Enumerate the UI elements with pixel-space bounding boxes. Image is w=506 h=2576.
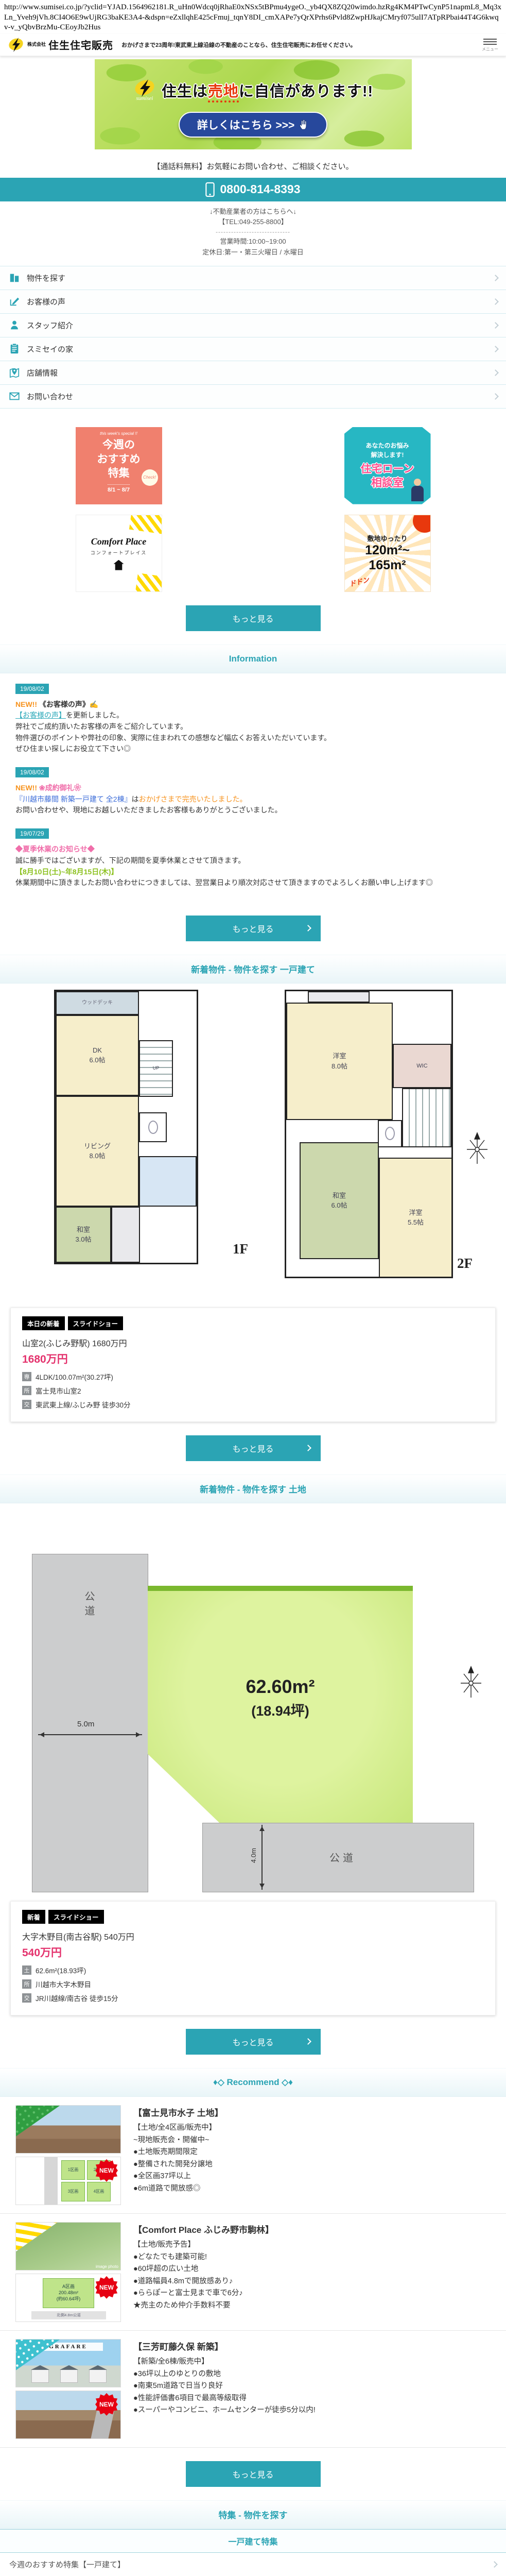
info-entry: 19/08/02 NEW!! ❀成約御礼❀ 『川越市藤間 新築一戸建て 全2棟』…	[15, 767, 491, 816]
property-price: 540万円	[22, 1944, 484, 1960]
main-menu: 物件を探す お客様の声 スタッフ紹介 スミセイの家 店舗情報 お問い合わせ	[0, 266, 506, 409]
recommend-section: ♦◇ Recommend ◇♦ 1区画 2区画 3区画 4区画 NEW 【富士見…	[0, 2068, 506, 2500]
badge-slideshow: スライドショー	[68, 1316, 124, 1330]
chevron-right-icon	[305, 2039, 311, 2045]
person-icon	[8, 319, 21, 331]
menu-label: 物件を探す	[27, 273, 65, 283]
phone-call-button[interactable]: 0800-814-8393	[0, 178, 506, 201]
chevron-right-icon	[492, 275, 499, 281]
plot-plan-thumbnail[interactable]: 1区画 2区画 3区画 4区画 NEW	[15, 2157, 121, 2205]
feature-title: 特集 - 物件を探す	[0, 2500, 506, 2529]
agent-note: ↓不動産業者の方はこちらへ↓	[0, 207, 506, 217]
spec-key-location: 所	[22, 1386, 31, 1395]
recommend-item-comfort-place[interactable]: image photo A区画 200.48m² (約60.64坪) 北側4.8…	[0, 2214, 506, 2331]
new-land-title: 新着物件 - 物件を探す 土地	[0, 1475, 506, 1503]
image-photo-thumbnail[interactable]: image photo	[15, 2222, 121, 2270]
new-house-section: 新着物件 - 物件を探す 一戸建て ウッドデッキ DK6.0帖 リビング8.0帖…	[0, 955, 506, 1475]
hero-banner[interactable]: sumisei 住生は売地に自信があります!! 詳しくはこちら >>>	[95, 59, 412, 149]
badge-new: 新着	[22, 1910, 45, 1924]
promo-banner-section: this week's special !! 今週のおすすめ特集 8/1 ~ 8…	[0, 409, 506, 645]
hamburger-menu-button[interactable]: メニュー	[481, 37, 499, 52]
hamburger-icon	[483, 39, 497, 40]
company-logo[interactable]: 株式会社 住生住宅販売	[7, 37, 113, 53]
recommend-item-title: 【三芳町藤久保 新築】	[133, 2340, 491, 2354]
chevron-right-icon	[305, 1445, 311, 1452]
spec-key-land: 土	[22, 1965, 31, 1975]
hero-banner-section: sumisei 住生は売地に自信があります!! 詳しくはこちら >>>	[0, 56, 506, 149]
promo-loan-consult[interactable]: あなたのお悩み解決します! 住宅ローン相談室	[344, 427, 431, 504]
date-badge: 19/08/02	[15, 684, 49, 694]
spec-value: 東武東上線/ふじみ野 徒歩30分	[36, 1399, 131, 1410]
recommend-item-fujikubo[interactable]: GRAFARE NEW 【三芳町藤久保 新築】 【新築/全6棟/販売中】 ●36…	[0, 2331, 506, 2448]
house-more-button[interactable]: もっと見る	[186, 1435, 321, 1461]
spec-key-location: 所	[22, 1979, 31, 1989]
spec-value: 富士見市山室2	[36, 1385, 81, 1396]
promo-comfort-place[interactable]: Comfort Place コンフォートプレイス	[76, 515, 162, 592]
chevron-right-icon	[491, 2561, 498, 2568]
chevron-right-icon	[492, 322, 499, 329]
property-price: 1680万円	[22, 1351, 484, 1366]
clipboard-icon	[8, 343, 21, 355]
chevron-right-icon	[305, 925, 311, 932]
spec-key-area: 専	[22, 1372, 31, 1381]
company-name: 住生住宅販売	[48, 37, 113, 52]
compass-icon	[466, 1132, 488, 1166]
chevron-right-icon	[492, 346, 499, 352]
divider-dashes: -----------------------------	[0, 227, 506, 237]
holiday-note: 定休日:第一・第三火曜日 / 水曜日	[0, 247, 506, 258]
yellow-ribbon	[15, 2222, 68, 2257]
information-title: Information	[0, 645, 506, 673]
information-more-button[interactable]: もっと見る	[186, 916, 321, 941]
land-plot: 62.60m² (18.94坪)	[148, 1586, 413, 1823]
recommend-title: ♦◇ Recommend ◇♦	[0, 2068, 506, 2097]
feature-section: 特集 - 物件を探す 一戸建て特集 今週のおすすめ特集【一戸建て】 【駅近】一戸…	[0, 2500, 506, 2576]
recommend-item-title: 【Comfort Place ふじみ野市駒林】	[133, 2223, 491, 2238]
menu-label: スタッフ紹介	[27, 320, 73, 331]
building-icon	[8, 272, 21, 284]
recommend-item-mizuko[interactable]: 1区画 2区画 3区画 4区画 NEW 【富士見市水子 土地】 【土地/全4区画…	[0, 2097, 506, 2214]
menu-label: お問い合わせ	[27, 391, 73, 402]
construction-photo-thumbnail[interactable]: NEW	[15, 2391, 121, 2439]
menu-item-contact[interactable]: お問い合わせ	[0, 385, 506, 409]
badge-slideshow: スライドショー	[48, 1910, 104, 1924]
floorplan-image[interactable]: ウッドデッキ DK6.0帖 リビング8.0帖 和室3.0帖 UP 1F 洋室8.…	[0, 984, 506, 1300]
info-entry: 19/07/29 ◆夏季休業のお知らせ◆ 誠に勝手ではございますが、下記の期間を…	[15, 828, 491, 889]
plot-plan-thumbnail[interactable]: A区画 200.48m² (約60.64坪) 北側4.8m公道 NEW	[15, 2274, 121, 2322]
site-header: 株式会社 住生住宅販売 おかげさまで23周年!東武東上線沿線の不動産のことなら、…	[0, 34, 506, 56]
house-cg-thumbnail[interactable]: GRAFARE	[15, 2339, 121, 2387]
spec-value: JR川越線/南古谷 徒歩15分	[36, 1993, 118, 2003]
logo-mark-icon	[7, 37, 25, 53]
new-house-title: 新着物件 - 物件を探す 一戸建て	[0, 955, 506, 984]
green-ribbon	[15, 2105, 69, 2143]
menu-item-sumisei-house[interactable]: スミセイの家	[0, 337, 506, 361]
spec-key-access: 交	[22, 1993, 31, 2003]
company-prefix: 株式会社	[27, 42, 46, 47]
menu-label: お客様の声	[27, 296, 65, 307]
land-photo-thumbnail[interactable]	[15, 2105, 121, 2154]
map-pin-icon	[8, 366, 21, 379]
menu-item-staff[interactable]: スタッフ紹介	[0, 314, 506, 337]
phone-icon	[205, 182, 215, 197]
spec-key-access: 交	[22, 1400, 31, 1409]
recommend-more-button[interactable]: もっと見る	[186, 2461, 321, 2487]
promo-weekly-special[interactable]: this week's special !! 今週のおすすめ特集 8/1 ~ 8…	[76, 427, 162, 504]
contact-section-top: 【通話料無料】お気軽にお問い合わせ、ご相談ください。 0800-814-8393…	[0, 149, 506, 266]
floorplan-2f: 洋室8.0帖 WIC 和室6.0帖 洋室5.5帖	[285, 990, 453, 1278]
raw-url-text: http://www.sumisei.co.jp/?yclid=YJAD.156…	[0, 0, 506, 34]
property-link[interactable]: 『川越市藤間 新築一戸建て 全2棟』	[15, 795, 132, 803]
promo-more-button[interactable]: もっと見る	[186, 605, 321, 631]
phone-number: 0800-814-8393	[220, 182, 300, 196]
hand-cursor-icon	[299, 119, 309, 130]
menu-item-search-properties[interactable]: 物件を探す	[0, 266, 506, 290]
menu-label: 店舗情報	[27, 367, 58, 378]
spec-value: 4LDK/100.07m²(30.27坪)	[36, 1371, 113, 1382]
house-property-card[interactable]: 本日の新着 スライドショー 山室2(ふじみ野駅) 1680万円 1680万円 専…	[10, 1308, 496, 1422]
land-plot-image[interactable]: 公道 5.0m 62.60m² (18.94坪) 公道 4.0m	[0, 1503, 506, 1894]
contact-lead: 【通話料無料】お気軽にお問い合わせ、ご相談ください。	[0, 161, 506, 172]
chevron-right-icon	[492, 393, 499, 400]
information-section: Information 19/08/02 NEW!! 《お客様の声》✍ 【お客様…	[0, 645, 506, 955]
pen-icon	[8, 295, 21, 308]
info-entry: 19/08/02 NEW!! 《お客様の声》✍ 【お客様の声】を更新しました。 …	[15, 684, 491, 755]
promo-large-lot[interactable]: 敷地ゆったり 120m²~165m² ドドン	[344, 515, 431, 592]
menu-label: スミセイの家	[27, 344, 73, 354]
property-title[interactable]: 大字木野目(南古谷駅) 540万円	[22, 1930, 484, 1942]
consultant-figure	[411, 486, 424, 501]
land-more-button[interactable]: もっと見る	[186, 2029, 321, 2055]
banner-headline: 住生は売地に自信があります!!	[162, 79, 373, 101]
badge-new-today: 本日の新着	[22, 1316, 65, 1330]
spec-value: 川越市大字木野目	[36, 1979, 91, 1989]
chevron-right-icon	[492, 298, 499, 305]
date-badge: 19/07/29	[15, 828, 49, 839]
banner-cta-button[interactable]: 詳しくはこちら >>>	[179, 112, 328, 138]
land-property-card[interactable]: 新着 スライドショー 大字木野目(南古谷駅) 540万円 540万円 土62.6…	[10, 1901, 496, 2015]
recommend-item-title: 【富士見市水子 土地】	[133, 2106, 491, 2121]
check-bubble: Check!	[142, 469, 158, 486]
business-hours: 営業時間:10:00~19:00	[0, 236, 506, 247]
menu-item-shop-info[interactable]: 店舗情報	[0, 361, 506, 385]
feature-link-weekly-house[interactable]: 今週のおすすめ特集【一戸建て】	[0, 2553, 506, 2576]
mail-icon	[8, 390, 21, 402]
hamburger-label: メニュー	[481, 46, 499, 52]
spec-value: 62.6m²(18.93坪)	[36, 1965, 86, 1975]
new-land-section: 新着物件 - 物件を探す 土地 公道 5.0m 62.60m² (18.94坪)…	[0, 1475, 506, 2068]
chevron-right-icon	[492, 369, 499, 376]
new-badge: NEW	[95, 2276, 118, 2299]
compass-icon	[460, 1666, 482, 1700]
floorplan-1f: ウッドデッキ DK6.0帖 リビング8.0帖 和室3.0帖 UP	[54, 990, 198, 1264]
house-feature-heading: 一戸建て特集	[0, 2529, 506, 2553]
house-icon	[114, 560, 124, 570]
width-arrow	[38, 1734, 142, 1735]
date-badge: 19/08/02	[15, 767, 49, 777]
property-title[interactable]: 山室2(ふじみ野駅) 1680万円	[22, 1336, 484, 1349]
customer-voice-link[interactable]: 【お客様の声】	[15, 711, 66, 719]
menu-item-customer-voice[interactable]: お客様の声	[0, 290, 506, 314]
header-tagline: おかげさまで23周年!東武東上線沿線の不動産のことなら、住生住宅販売にお任せくだ…	[121, 41, 481, 49]
banner-logo-icon: sumisei	[133, 79, 156, 101]
agent-tel[interactable]: 【TEL:049-255-8800】	[0, 217, 506, 227]
depth-arrow	[261, 1825, 263, 1890]
